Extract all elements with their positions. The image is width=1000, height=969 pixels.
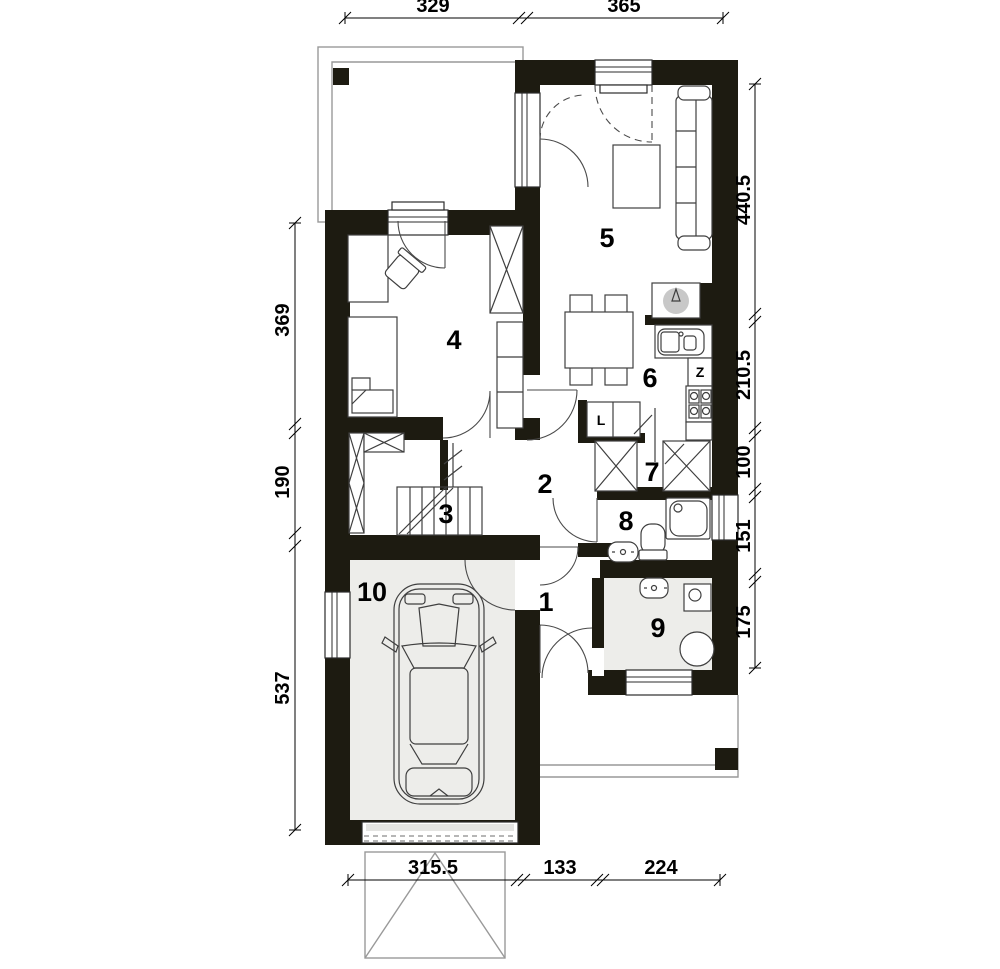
terrace-glass-door <box>515 93 540 187</box>
room-label-5: 5 <box>599 223 614 253</box>
dim-right-2: 210.5 <box>733 350 755 400</box>
bathroom-door-swing <box>553 498 597 542</box>
dim-left-3: 537 <box>272 671 294 704</box>
wall-bedroom-east-upper <box>523 210 540 375</box>
dim-left-1: 369 <box>272 303 294 336</box>
dim-top-2: 365 <box>607 0 640 17</box>
room-label-10: 10 <box>357 577 387 607</box>
wall-hall-utility <box>592 578 604 648</box>
fridge-label: L <box>597 412 606 428</box>
dishwasher-cabinet: Z <box>688 358 712 386</box>
garage-sectional-door <box>362 822 518 843</box>
toilet <box>639 524 667 560</box>
sofa <box>676 86 712 250</box>
utility-washbasin <box>640 578 668 598</box>
kitchen-sink <box>655 325 712 358</box>
dim-bottom-2: 133 <box>543 857 576 879</box>
wall-bath-utility <box>600 560 712 578</box>
room-label-3: 3 <box>438 499 453 529</box>
hall-door-swing <box>540 547 578 585</box>
room-label-7: 7 <box>644 457 659 487</box>
room-label-8: 8 <box>618 506 633 536</box>
coffee-table <box>613 145 660 208</box>
bedroom-shelf-unit <box>497 322 523 428</box>
room-label-1: 1 <box>538 587 553 617</box>
room-label-2: 2 <box>537 469 552 499</box>
bedroom-door-opening <box>443 417 487 440</box>
dining-table <box>565 295 633 385</box>
entry-porch <box>530 695 738 777</box>
fireplace <box>652 283 700 318</box>
desk <box>348 235 388 302</box>
dim-right-4: 151 <box>733 519 755 552</box>
dim-left-2: 190 <box>272 465 294 498</box>
window-bedroom-north <box>388 202 448 235</box>
terrace-inner-edge <box>332 62 523 222</box>
terrace-door-swing <box>540 139 588 187</box>
water-heater <box>680 632 714 666</box>
dim-bottom-1: 315.5 <box>408 857 458 879</box>
window-garage-west <box>325 592 350 658</box>
dim-right-5: 175 <box>733 605 755 638</box>
bedroom-wardrobe <box>490 226 523 313</box>
dim-top-1: 329 <box>416 0 449 17</box>
utility-door-opening <box>592 648 604 676</box>
room-label-9: 9 <box>650 613 665 643</box>
bed <box>348 317 397 417</box>
floor-plan-canvas: Z L <box>0 0 1000 969</box>
bath-washbasin <box>608 542 638 562</box>
washing-machine <box>684 584 711 611</box>
dim-bottom-3: 224 <box>644 857 678 879</box>
front-door-swing <box>540 625 588 673</box>
terrace <box>318 47 523 222</box>
room-label-6: 6 <box>642 363 657 393</box>
fridge-cabinet: L <box>587 402 640 437</box>
dim-right-3: 100 <box>733 445 755 478</box>
stove <box>686 386 712 440</box>
dishwasher-label: Z <box>696 364 705 380</box>
wall-garage-north <box>350 535 515 560</box>
garage-door-opening <box>515 560 540 610</box>
window-utility-south <box>626 670 692 695</box>
dim-right-1: 440.5 <box>733 175 755 225</box>
terrace-door-swing-dashed <box>540 95 585 140</box>
front-door-opening <box>540 670 588 695</box>
window-living-north <box>595 60 652 93</box>
room-label-4: 4 <box>446 325 461 355</box>
wall-fireplace-side <box>700 283 712 320</box>
hall-wardrobes <box>349 433 404 533</box>
porch-column <box>715 748 738 770</box>
shower <box>666 498 710 539</box>
wall-west <box>325 235 350 845</box>
terrace-column <box>333 68 349 85</box>
